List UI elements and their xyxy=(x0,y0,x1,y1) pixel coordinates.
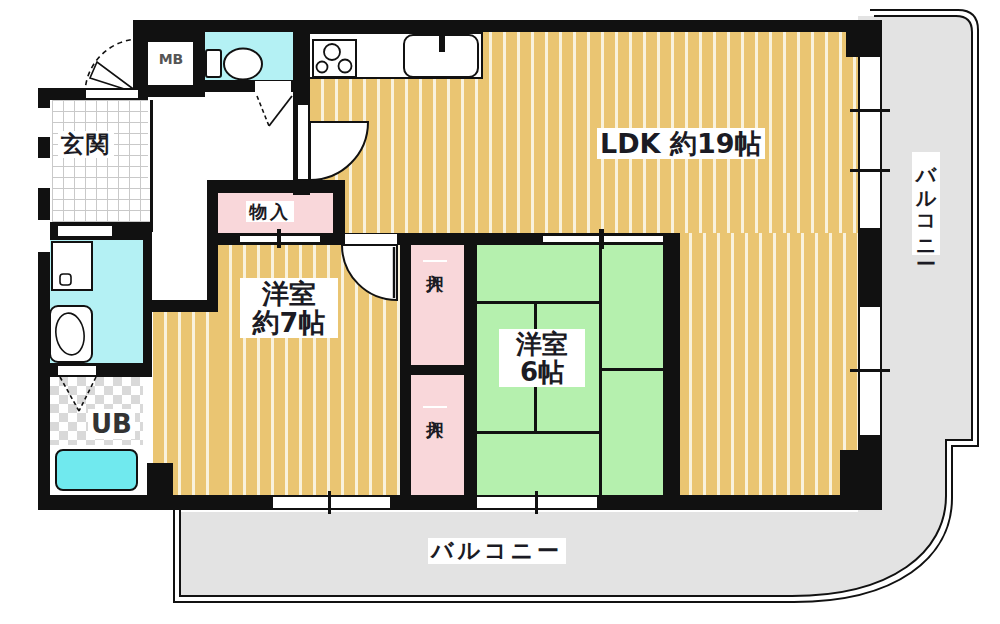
stove-burner xyxy=(317,62,328,73)
toilet-tank xyxy=(206,50,221,77)
meter-box-label: MB xyxy=(150,52,192,67)
tatami-line xyxy=(602,368,663,371)
window-tick xyxy=(850,369,890,372)
storage-label: 物入 xyxy=(246,201,294,222)
wall xyxy=(133,85,205,97)
window-icon xyxy=(273,495,390,510)
window-tick xyxy=(850,169,890,172)
wall xyxy=(400,365,464,375)
entrance-door-opening xyxy=(86,88,138,100)
western7-door-opening xyxy=(345,234,397,244)
toilet-icon xyxy=(224,49,262,80)
window-tick xyxy=(328,491,331,514)
wall xyxy=(196,80,308,92)
toilet-door-fold-right xyxy=(269,96,292,126)
western7-label: 洋室 約7帖 xyxy=(240,278,338,338)
wall-niche xyxy=(38,220,50,252)
wall-bottom xyxy=(38,495,860,510)
ldk-label: LDK 約19帖 xyxy=(597,128,765,159)
wall-corner xyxy=(846,20,882,57)
stove-burner xyxy=(339,60,352,73)
wall xyxy=(207,190,218,312)
window-tick xyxy=(535,491,538,514)
ldk-door-opening xyxy=(296,105,310,179)
toilet-door-fold-left xyxy=(257,96,269,126)
sliding-door-icon xyxy=(277,229,281,248)
wall-corner xyxy=(840,450,882,510)
toilet-door-opening xyxy=(255,81,291,92)
tatami-line xyxy=(477,431,601,434)
balcony-bottom-label: バルコニー xyxy=(428,538,566,564)
sliding-door-icon xyxy=(599,229,604,249)
unit-bath-label: UB xyxy=(88,409,135,439)
entrance-label: 玄関 xyxy=(58,131,114,158)
folding-door-icon xyxy=(60,377,96,411)
window-tick xyxy=(850,109,890,112)
closet-upper-label: 押入 xyxy=(423,260,447,262)
wall xyxy=(464,233,477,497)
wall-left xyxy=(38,88,50,510)
washroom-sliding-door xyxy=(58,224,112,238)
washbasin-icon xyxy=(52,242,92,290)
closet-lower-label: 押入 xyxy=(423,406,447,408)
balcony-right-label: バルコニー xyxy=(912,152,940,255)
tatami-line xyxy=(599,245,602,497)
wall-niche xyxy=(38,158,50,188)
floor-plan: MB 玄関 LDK 約19帖 物入 洋室 約7帖 洋室 6帖 押入 押入 UB … xyxy=(0,0,1000,624)
unit-bath-door-opening xyxy=(58,364,96,377)
wall-top xyxy=(143,20,872,32)
western7-label-line1: 洋室 xyxy=(243,279,335,308)
wall-niche xyxy=(38,108,50,137)
entrance-step-line xyxy=(150,100,153,232)
window-icon xyxy=(858,57,882,228)
stove-burner xyxy=(324,44,340,60)
western6-label: 洋室 6帖 xyxy=(499,329,585,387)
western7-label-line2: 約7帖 xyxy=(243,308,335,337)
wall xyxy=(143,300,218,312)
washbasin-faucet xyxy=(60,274,71,285)
ldk-door-swing xyxy=(310,122,368,180)
western6-label-line2: 6帖 xyxy=(502,358,582,386)
wall xyxy=(207,180,345,193)
tatami-line xyxy=(477,301,601,304)
western6-label-line1: 洋室 xyxy=(502,330,582,358)
western7-door-swing xyxy=(342,245,397,300)
wall xyxy=(663,233,680,510)
